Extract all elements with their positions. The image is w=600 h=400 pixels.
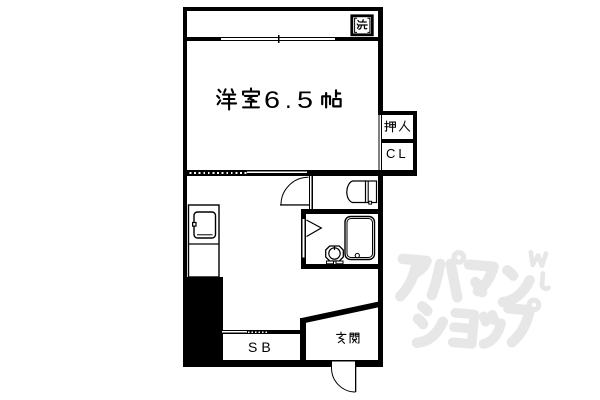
svg-text:SB: SB — [248, 339, 275, 355]
svg-text:CL: CL — [386, 146, 409, 161]
svg-text:5: 5 — [297, 86, 313, 113]
svg-text:6: 6 — [264, 86, 280, 113]
svg-text:.: . — [285, 87, 292, 114]
